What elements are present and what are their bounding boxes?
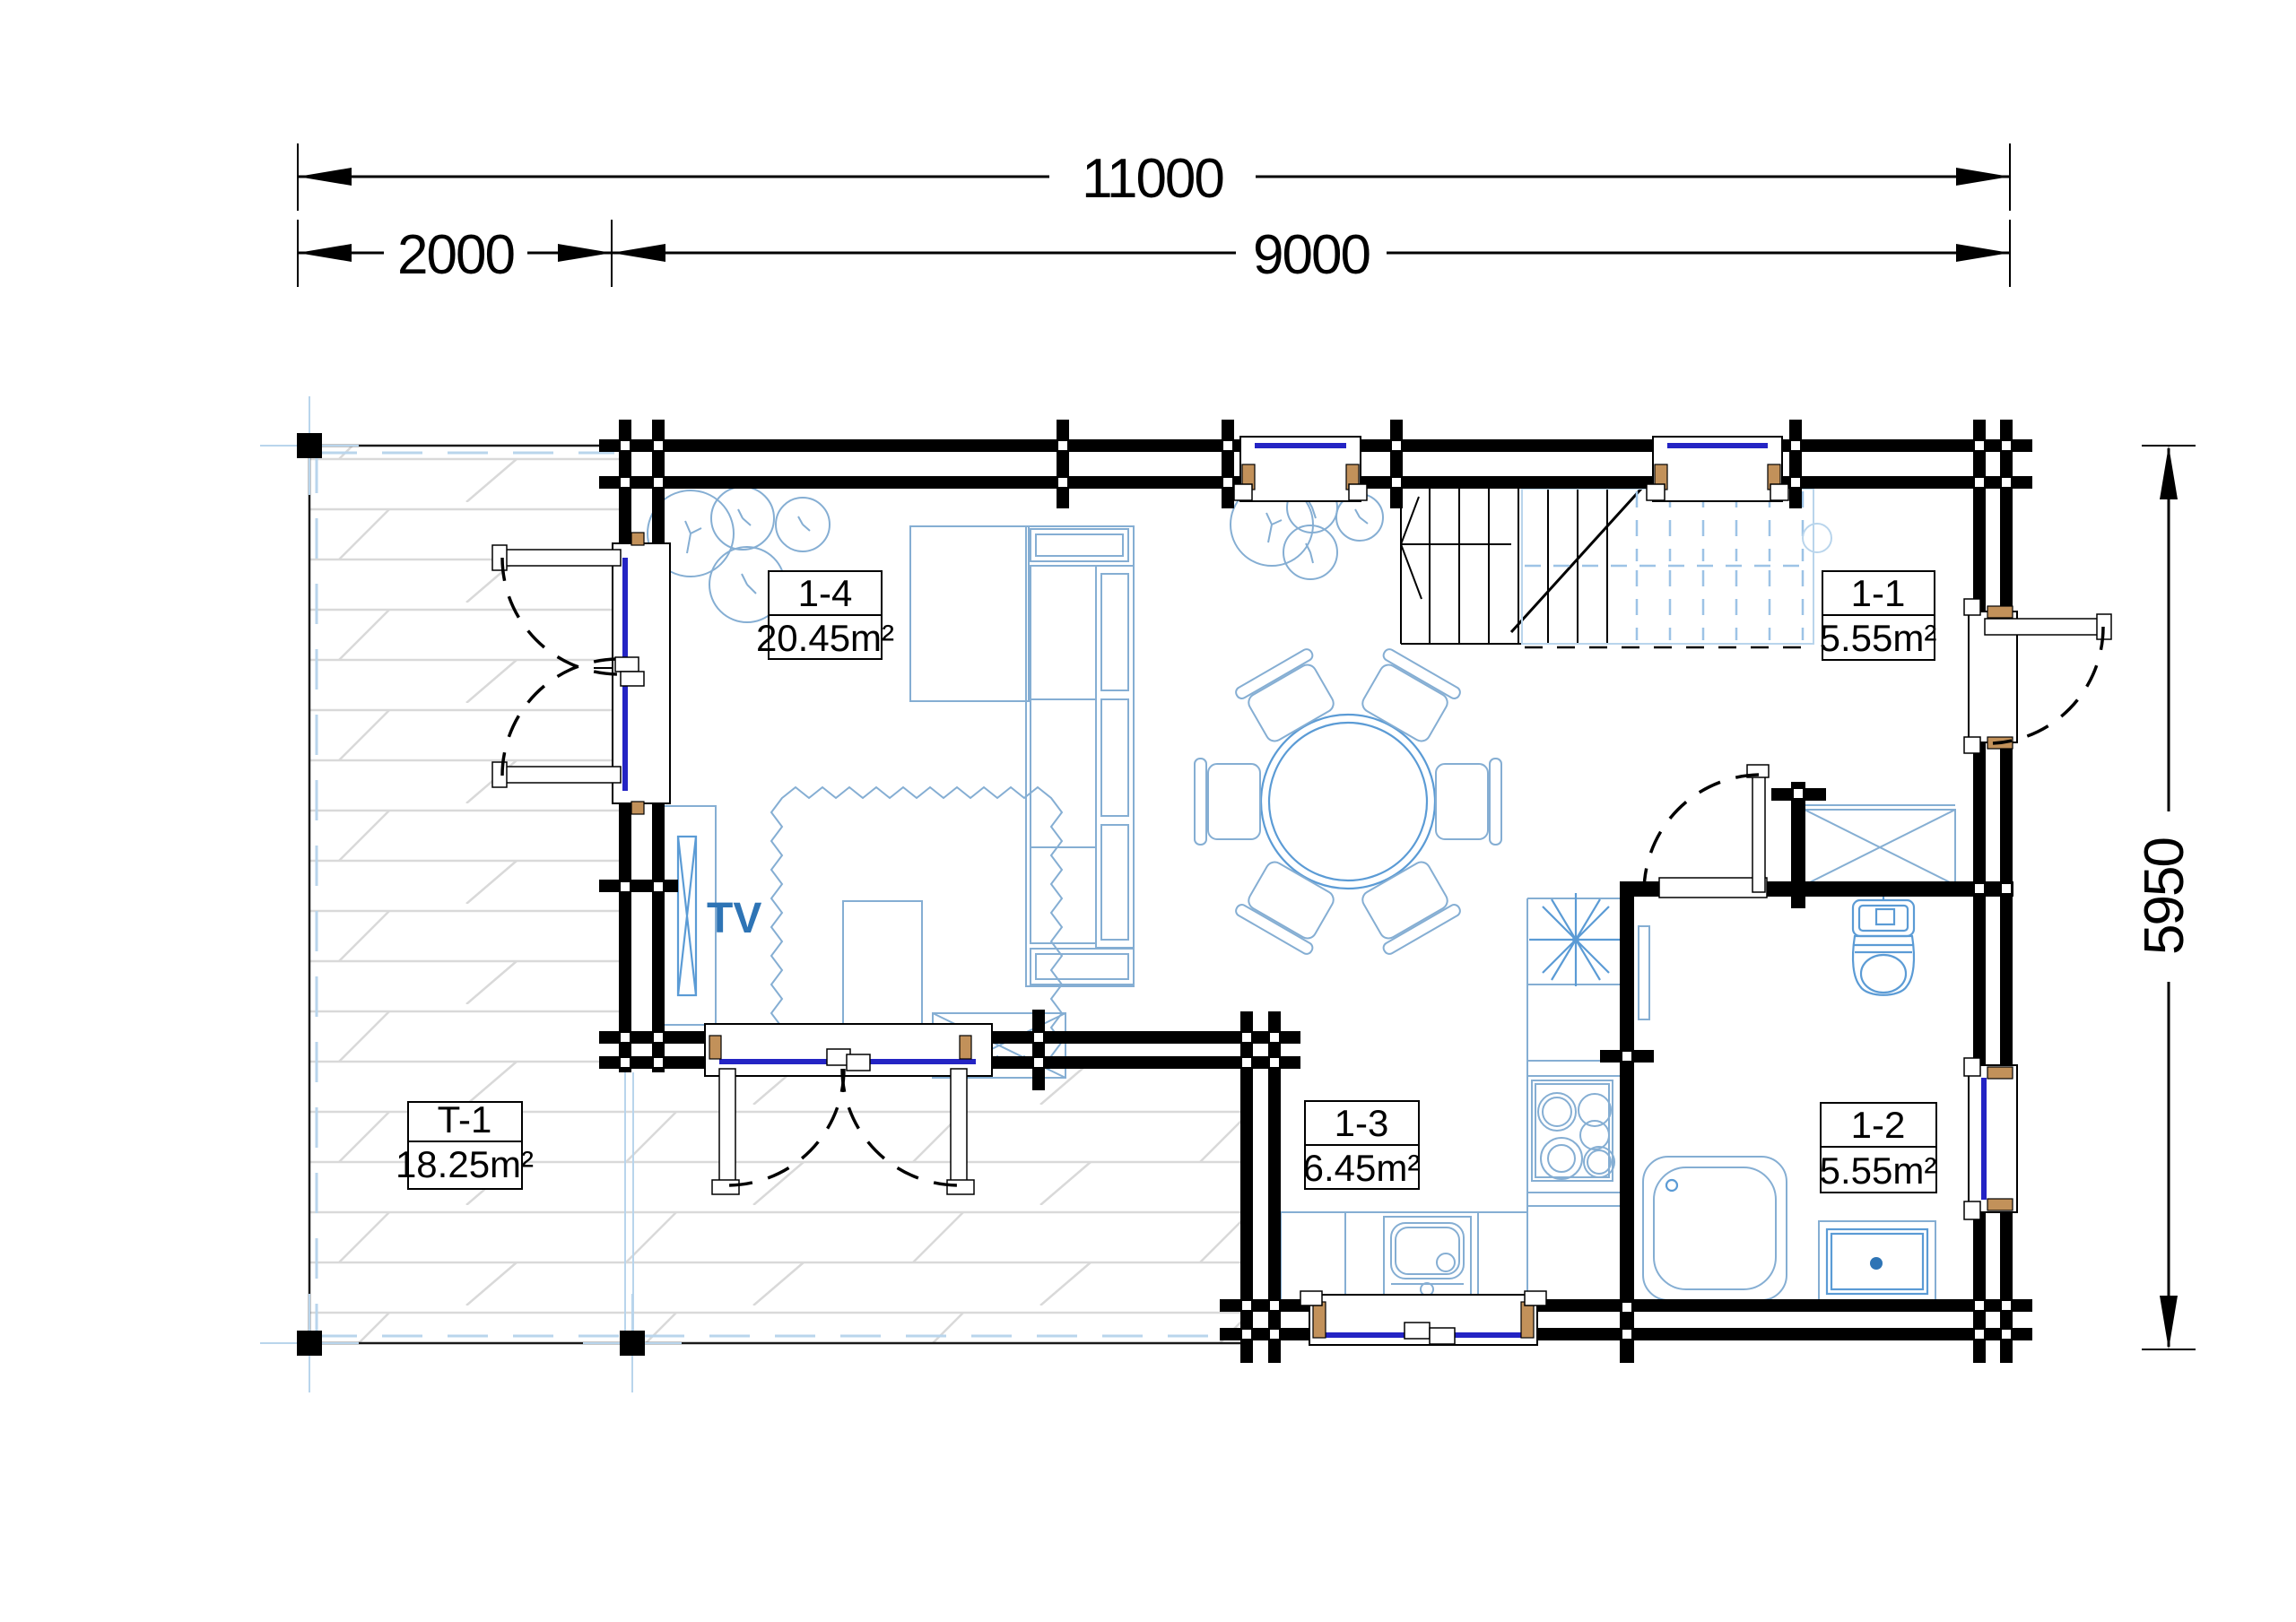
- dim-terrace-width: 2000: [397, 224, 514, 286]
- bathroom-shelf: [1639, 926, 1649, 1019]
- room-id: 1-4: [798, 572, 853, 614]
- dining-chairs: [1195, 647, 1501, 956]
- entrance-door-east: [1964, 599, 2111, 753]
- room-id: 1-1: [1851, 572, 1906, 614]
- room-label-kitchen: 1-3 6.45m²: [1303, 1101, 1421, 1189]
- hall-wardrobe: [1805, 805, 1955, 885]
- tv-label: TV: [707, 895, 761, 942]
- dim-house-width: 9000: [1253, 224, 1370, 286]
- dining-table: [1195, 647, 1501, 956]
- kitchen-counter-south: [1281, 1212, 1527, 1300]
- dimension-depth: 5950: [2134, 446, 2196, 1349]
- stairs: [1401, 489, 1831, 647]
- floor-plan-page: 1-4 20.45m² 1-1 5.55m² 1-3 6.45m² 1-2 5.…: [0, 0, 2296, 1622]
- terrace-post: [297, 433, 322, 458]
- dim-total-width: 11000: [1082, 148, 1223, 210]
- room-id: 1-3: [1335, 1102, 1389, 1144]
- room-label-bathroom: 1-2 5.55m²: [1820, 1103, 1937, 1193]
- room-label-terrace: T-1 18.25m²: [396, 1098, 534, 1189]
- window-north-1: [1234, 437, 1367, 501]
- window-north-2: [1647, 437, 1788, 501]
- window-east-bathroom: [1964, 1058, 2017, 1219]
- bathroom-fixtures: [1639, 893, 1935, 1302]
- room-label-living: 1-4 20.45m²: [756, 571, 894, 659]
- room-id: T-1: [438, 1098, 492, 1141]
- room-area: 18.25m²: [396, 1143, 534, 1185]
- window-south-kitchen: [1300, 1291, 1546, 1345]
- room-area: 20.45m²: [756, 617, 894, 659]
- dim-house-depth: 5950: [2134, 838, 2196, 955]
- stove: [1532, 1080, 1614, 1181]
- floor-plan-drawing: 1-4 20.45m² 1-1 5.55m² 1-3 6.45m² 1-2 5.…: [0, 0, 2296, 1622]
- kitchen-sink: [1384, 1217, 1471, 1298]
- shower: [1643, 1157, 1787, 1300]
- terrace-post: [297, 1331, 322, 1356]
- room-label-hall: 1-1 5.55m²: [1820, 571, 1937, 660]
- room-area: 5.55m²: [1820, 617, 1937, 659]
- vanity-sink: [1819, 1221, 1935, 1302]
- toilet: [1853, 893, 1914, 995]
- dimension-overall-width: 11000: [298, 139, 2010, 214]
- room-id: 1-2: [1851, 1104, 1906, 1146]
- room-area: 6.45m²: [1303, 1147, 1421, 1189]
- boiler-star: [1529, 893, 1622, 986]
- corner-sofa: [1026, 526, 1134, 986]
- side-table: [910, 526, 1029, 701]
- room-area: 5.55m²: [1820, 1149, 1937, 1192]
- terrace-post: [620, 1331, 645, 1356]
- bathroom-door: [1644, 765, 1769, 898]
- dimension-split-widths: 2000 9000: [298, 217, 2010, 287]
